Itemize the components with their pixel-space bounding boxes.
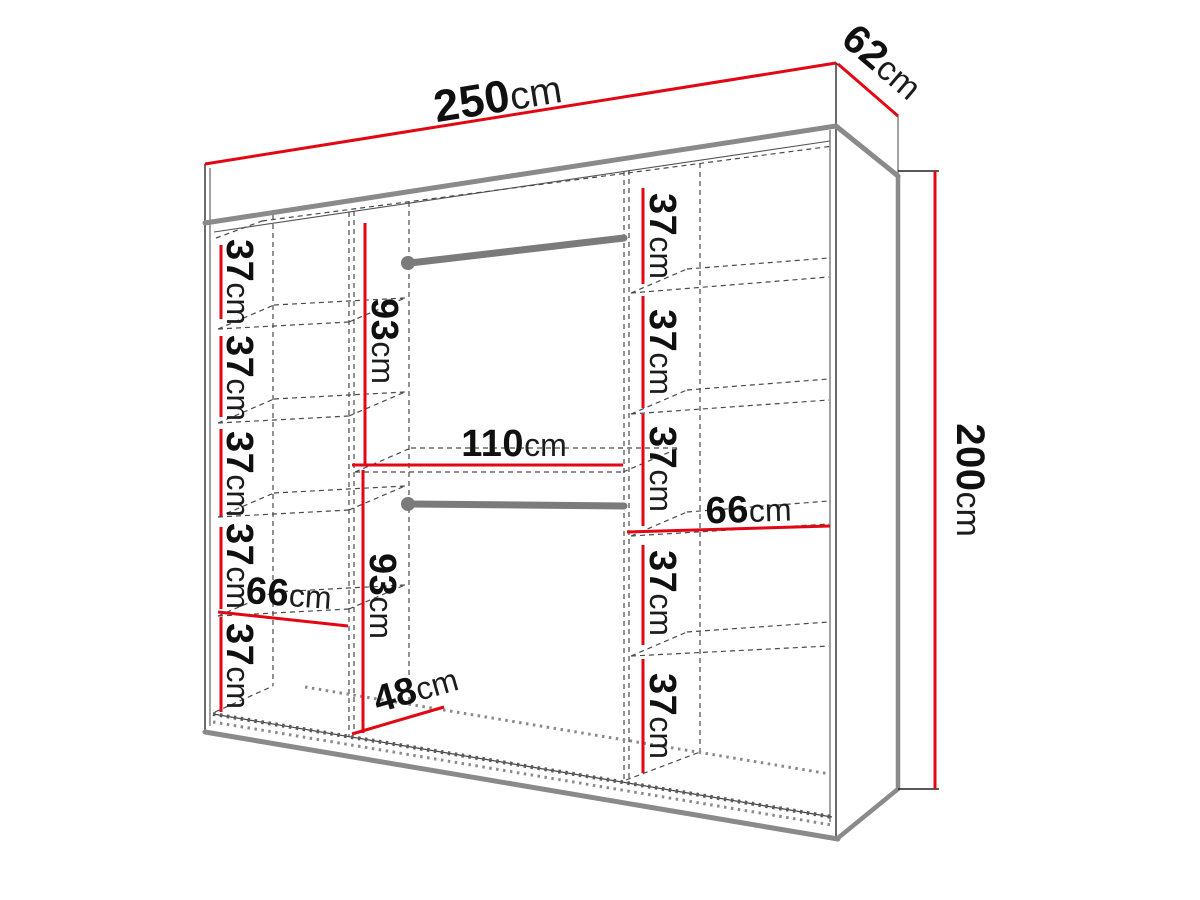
width-110-label: 110cm [461,423,566,465]
right-shelf-label-3: 37cm [641,426,683,512]
ceiling-back-edge [262,146,833,221]
right-shelf-label-2: 37cm [641,309,683,395]
hang-93-top-label: 93cm [363,298,405,384]
left-width-66-label: 66cm [245,570,334,618]
left-shelf-label-2: 37cm [218,335,260,421]
hanging-rail-bottom [401,497,624,511]
header-bottom-edge [205,126,898,223]
diagram-canvas: 250cm 62cm 200cm 37cm 37cm 37cm 37cm 37c… [0,0,1200,900]
right-shelf-label-5: 37cm [641,673,683,759]
left-shelf-label-3: 37cm [218,431,260,517]
side-bottom-edge [838,789,898,838]
left-shelf-label-5: 37cm [218,623,260,709]
plinth-bottom-edge [205,732,838,839]
floor-lower-ticks [213,722,832,825]
ceiling-left-connector [216,221,262,238]
dimension-labels: 250cm 62cm 200cm 37cm 37cm 37cm 37cm 37c… [218,16,992,759]
wardrobe-dimension-diagram: 250cm 62cm 200cm 37cm 37cm 37cm 37cm 37c… [0,0,1200,900]
left-shelf-label-1: 37cm [218,239,260,325]
right-width-66-label: 66cm [705,488,792,533]
right-shelf-label-4: 37cm [641,550,683,636]
height-200-brackets [898,171,939,789]
width-250-label: 250cm [430,61,565,132]
hanging-rail-top [401,238,624,270]
hang-93-bottom-label: 93cm [361,553,403,639]
right-shelf-label-1: 37cm [641,193,683,279]
depth-48-label: 48cm [369,657,463,721]
height-200-label: 200cm [948,423,992,537]
depth-62-label: 62cm [834,16,932,108]
dimension-lines [205,63,939,789]
